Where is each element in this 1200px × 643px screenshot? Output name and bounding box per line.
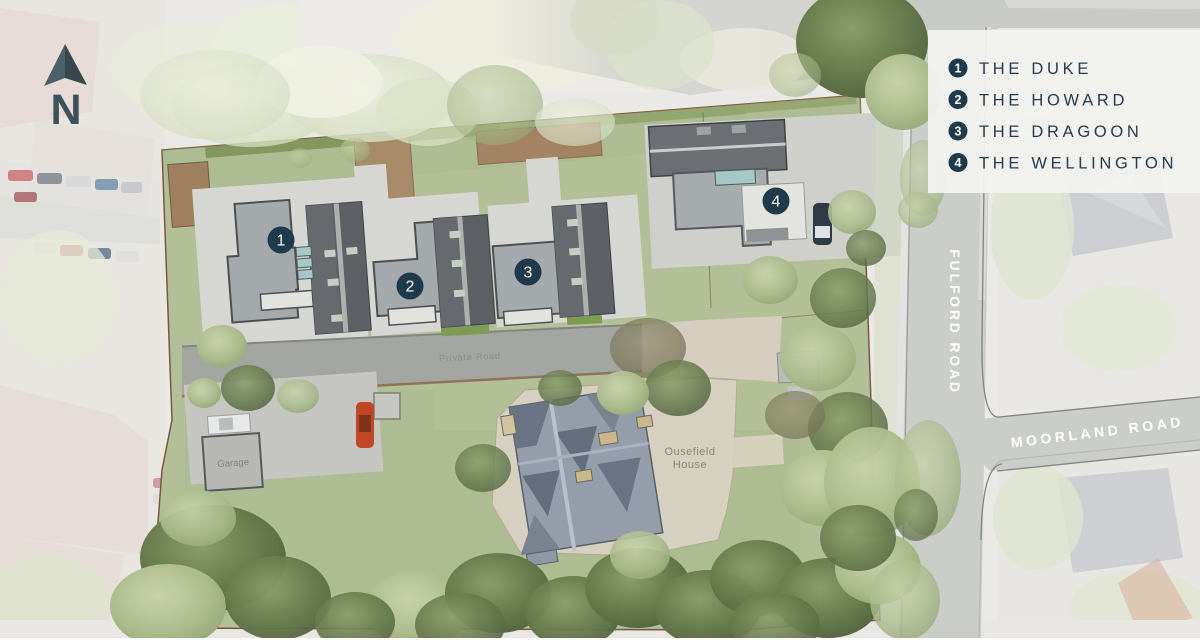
svg-text:THE WELLINGTON: THE WELLINGTON	[979, 155, 1177, 173]
svg-text:4: 4	[772, 194, 781, 211]
svg-text:FULFORD ROAD: FULFORD ROAD	[947, 249, 963, 395]
svg-text:Garage: Garage	[217, 457, 249, 470]
svg-text:1: 1	[277, 233, 286, 250]
svg-text:Ousefield: Ousefield	[665, 446, 716, 458]
svg-text:3: 3	[524, 265, 533, 282]
svg-text:House: House	[673, 459, 707, 471]
svg-text:1: 1	[955, 62, 962, 76]
svg-text:THE DRAGOON: THE DRAGOON	[979, 123, 1143, 141]
svg-text:2: 2	[955, 93, 962, 107]
svg-text:THE HOWARD: THE HOWARD	[979, 92, 1128, 110]
svg-text:4: 4	[955, 156, 962, 170]
svg-text:THE DUKE: THE DUKE	[979, 60, 1092, 78]
svg-text:3: 3	[955, 125, 962, 139]
svg-text:2: 2	[406, 279, 415, 296]
svg-text:N: N	[50, 86, 81, 134]
